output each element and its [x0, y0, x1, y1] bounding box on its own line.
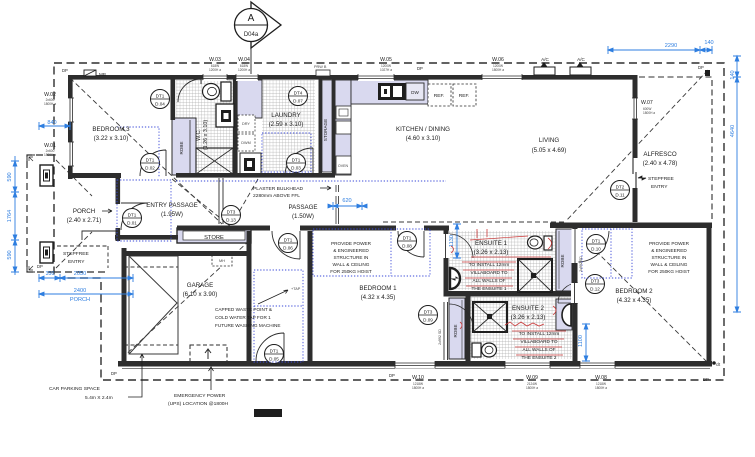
svg-text:(4.60 x 3.10): (4.60 x 3.10) [406, 135, 441, 142]
svg-text:620: 620 [342, 198, 351, 204]
svg-text:ENTRY PASSAGE: ENTRY PASSAGE [146, 202, 198, 209]
svg-text:STRUCTURE IN: STRUCTURE IN [334, 255, 369, 260]
svg-text:ALL WALLS OF: ALL WALLS OF [473, 278, 506, 283]
svg-text:+TAP: +TAP [291, 287, 301, 291]
svg-text:W.05: W.05 [380, 57, 392, 63]
svg-text:D.10: D.10 [591, 247, 601, 252]
svg-text:D.07: D.07 [293, 99, 303, 104]
svg-text:D04a: D04a [244, 32, 259, 38]
svg-text:GARAGE: GARAGE [187, 282, 213, 289]
svg-text:ENSUITE 1: ENSUITE 1 [475, 240, 508, 247]
svg-text:PRW B: PRW B [314, 65, 327, 69]
svg-text:THE ENSUITE 1: THE ENSUITE 1 [472, 286, 507, 291]
svg-text:1764: 1764 [7, 210, 13, 222]
svg-text:BEDROOM 2: BEDROOM 2 [615, 288, 653, 295]
svg-text:DT2: DT2 [616, 185, 625, 190]
svg-text:DT3: DT3 [424, 310, 433, 315]
svg-text:WALL & CEILING: WALL & CEILING [651, 262, 688, 267]
svg-text:STEPFREE: STEPFREE [63, 251, 90, 257]
svg-text:COLD WATER TAP FOR 1: COLD WATER TAP FOR 1 [215, 315, 271, 320]
svg-text:REF.: REF. [459, 93, 470, 99]
svg-text:TO INSTALL 12mm: TO INSTALL 12mm [469, 262, 510, 267]
svg-text:DP: DP [417, 66, 423, 71]
svg-text:DW: DW [411, 90, 419, 95]
svg-text:W.06: W.06 [492, 57, 504, 63]
svg-text:1800H a: 1800H a [44, 102, 56, 106]
svg-text:EMERGENCY POWER: EMERGENCY POWER [174, 393, 226, 399]
svg-text:FOR 250KG HOIST: FOR 250KG HOIST [330, 269, 372, 274]
svg-text:(1.50W): (1.50W) [292, 213, 314, 220]
svg-text:A/C: A/C [541, 57, 549, 62]
svg-text:W.09: W.09 [526, 375, 538, 381]
svg-text:DT1: DT1 [592, 239, 601, 244]
svg-text:W.C.: W.C. [196, 129, 202, 141]
svg-text:1200H a: 1200H a [209, 68, 221, 72]
svg-text:PROVIDE POWER: PROVIDE POWER [649, 241, 690, 246]
svg-text:2400: 2400 [74, 288, 86, 294]
svg-text:W.07: W.07 [641, 100, 653, 106]
svg-text:(3.26 x 2.13): (3.26 x 2.13) [511, 314, 546, 321]
svg-text:STRUCTURE IN: STRUCTURE IN [652, 255, 687, 260]
svg-text:DRY: DRY [242, 122, 250, 126]
svg-text:ENTRY: ENTRY [651, 184, 668, 190]
svg-text:MB: MB [99, 72, 106, 77]
svg-text:D.11: D.11 [615, 193, 625, 198]
svg-text:(2.59 x 3.10): (2.59 x 3.10) [269, 121, 304, 128]
svg-text:(3.22 x 3.10): (3.22 x 3.10) [94, 135, 129, 142]
svg-text:PROVIDE POWER: PROVIDE POWER [331, 241, 372, 246]
svg-text:ENTRY: ENTRY [68, 259, 85, 265]
svg-text:D.06: D.06 [283, 246, 293, 251]
svg-text:1800H a: 1800H a [526, 386, 538, 390]
svg-text:(2.40 x 4.78): (2.40 x 4.78) [643, 160, 678, 167]
svg-text:350: 350 [46, 271, 55, 277]
svg-text:(5.05 x 4.69): (5.05 x 4.69) [532, 147, 567, 154]
svg-text:DT1: DT1 [292, 158, 301, 163]
svg-text:TO INSTALL 12mm: TO INSTALL 12mm [519, 331, 560, 336]
svg-text:WALL & CEILING: WALL & CEILING [333, 262, 370, 267]
svg-text:ROBE: ROBE [453, 324, 458, 337]
svg-text:W.03: W.03 [209, 57, 221, 63]
svg-text:PORCH: PORCH [70, 297, 90, 303]
svg-text:1800H a: 1800H a [412, 386, 424, 390]
svg-text:2290: 2290 [665, 43, 677, 49]
svg-text:& ENGINEERED: & ENGINEERED [651, 248, 687, 253]
svg-text:VILLABOARD TO: VILLABOARD TO [470, 270, 507, 275]
svg-text:1800H a: 1800H a [643, 111, 655, 115]
svg-text:DP: DP [37, 264, 43, 269]
svg-text:D.08: D.08 [402, 244, 412, 249]
svg-text:1800H a: 1800H a [44, 153, 56, 157]
svg-text:840: 840 [47, 120, 56, 126]
svg-text:DT1: DT1 [128, 213, 137, 218]
svg-text:(3.26 x 2.13): (3.26 x 2.13) [474, 249, 509, 256]
svg-text:PORCH: PORCH [73, 208, 95, 215]
svg-text:(4.32 x 4.35): (4.32 x 4.35) [617, 297, 652, 304]
svg-text:DT1: DT1 [284, 238, 293, 243]
svg-text:ALFRESCO: ALFRESCO [643, 151, 677, 158]
svg-text:OVEN: OVEN [338, 164, 349, 168]
svg-text:THE ENSUITE 2: THE ENSUITE 2 [522, 355, 557, 360]
svg-text:FOR 250KG HOIST: FOR 250KG HOIST [648, 269, 690, 274]
svg-text:REF.: REF. [434, 93, 445, 99]
svg-text:W.04: W.04 [238, 57, 250, 63]
svg-text:2x992 SD: 2x992 SD [438, 329, 442, 345]
svg-text:1800H a: 1800H a [492, 68, 504, 72]
svg-text:2050: 2050 [74, 271, 86, 277]
svg-text:(2.40 x 2.71): (2.40 x 2.71) [67, 217, 102, 224]
svg-text:D.04: D.04 [155, 102, 165, 107]
svg-text:DP: DP [111, 371, 117, 376]
svg-text:STEPFREE: STEPFREE [648, 176, 675, 182]
svg-text:ROBE: ROBE [179, 141, 184, 154]
svg-text:A/C: A/C [577, 57, 585, 62]
svg-text:BEDROOM 3: BEDROOM 3 [92, 126, 130, 133]
svg-text:1100: 1100 [578, 335, 584, 347]
svg-text:D.13: D.13 [226, 218, 236, 223]
svg-text:5.4m X 2.4m: 5.4m X 2.4m [85, 395, 113, 401]
svg-text:A: A [248, 13, 255, 24]
svg-text:MH: MH [219, 259, 225, 263]
svg-text:D.03: D.03 [291, 166, 301, 171]
svg-text:(1.26 x 3.10): (1.26 x 3.10) [203, 120, 209, 150]
svg-text:LAUNDRY: LAUNDRY [271, 112, 300, 119]
svg-text:DT1: DT1 [156, 94, 165, 99]
svg-text:D.09: D.09 [423, 318, 433, 323]
svg-text:140: 140 [704, 40, 713, 46]
svg-text:D.12: D.12 [590, 287, 600, 292]
svg-text:DP: DP [698, 65, 704, 70]
svg-text:CAR PARKING SPACE: CAR PARKING SPACE [49, 386, 101, 392]
svg-text:LIVING: LIVING [539, 137, 559, 144]
svg-text:1200H a: 1200H a [238, 68, 250, 72]
svg-text:590: 590 [7, 172, 13, 181]
svg-text:ROBE: ROBE [560, 254, 565, 267]
svg-text:D.05: D.05 [269, 357, 279, 362]
svg-text:2x992 SD: 2x992 SD [579, 256, 583, 272]
svg-text:(6.10 x 3.90): (6.10 x 3.90) [183, 291, 218, 298]
svg-text:ENSUITE 2: ENSUITE 2 [512, 305, 545, 312]
svg-text:DT1: DT1 [270, 349, 279, 354]
svg-text:KITCHEN / DINING: KITCHEN / DINING [396, 126, 450, 133]
svg-text:(1.95W): (1.95W) [161, 211, 183, 218]
svg-text:ALL WALLS OF: ALL WALLS OF [523, 347, 556, 352]
svg-text:1027H a: 1027H a [380, 68, 392, 72]
svg-text:(UPS) LOCATION @1800H: (UPS) LOCATION @1800H [168, 401, 229, 407]
svg-text:DP: DP [389, 373, 395, 378]
svg-text:CAPPED WASTE POINT &: CAPPED WASTE POINT & [215, 307, 273, 312]
svg-text:PLASTER BULKHEAD: PLASTER BULKHEAD [253, 186, 303, 192]
svg-text:DT3: DT3 [591, 279, 600, 284]
svg-text:590: 590 [7, 250, 13, 259]
svg-text:DT4: DT4 [294, 91, 303, 96]
svg-text:1130: 1130 [449, 235, 455, 247]
svg-text:DT1: DT1 [146, 158, 155, 163]
svg-text:(4.32 x 4.35): (4.32 x 4.35) [361, 294, 396, 301]
svg-text:STORAGE: STORAGE [323, 119, 328, 141]
svg-text:2280mm ABOVE FFL: 2280mm ABOVE FFL [253, 193, 300, 199]
svg-text:W.10: W.10 [412, 375, 424, 381]
svg-text:STORE: STORE [204, 235, 224, 241]
svg-text:FUTURE WASHING MACHINE: FUTURE WASHING MACHINE [215, 323, 280, 328]
svg-text:BEDROOM 1: BEDROOM 1 [359, 285, 397, 292]
svg-text:D.02: D.02 [145, 166, 155, 171]
svg-text:VILLABOARD TO: VILLABOARD TO [520, 339, 557, 344]
svg-text:D.01: D.01 [127, 221, 137, 226]
svg-text:140: 140 [730, 70, 736, 79]
svg-text:DP: DP [62, 68, 68, 73]
svg-text:W.08: W.08 [595, 375, 607, 381]
svg-text:DT1: DT1 [403, 236, 412, 241]
svg-text:4640: 4640 [730, 125, 736, 137]
svg-text:DT3: DT3 [227, 210, 236, 215]
svg-text:DP: DP [703, 377, 709, 382]
svg-text:& ENGINEERED: & ENGINEERED [333, 248, 369, 253]
svg-text:DWM: DWM [241, 141, 251, 145]
svg-text:PASSAGE: PASSAGE [288, 204, 317, 211]
svg-text:1800H a: 1800H a [595, 386, 607, 390]
